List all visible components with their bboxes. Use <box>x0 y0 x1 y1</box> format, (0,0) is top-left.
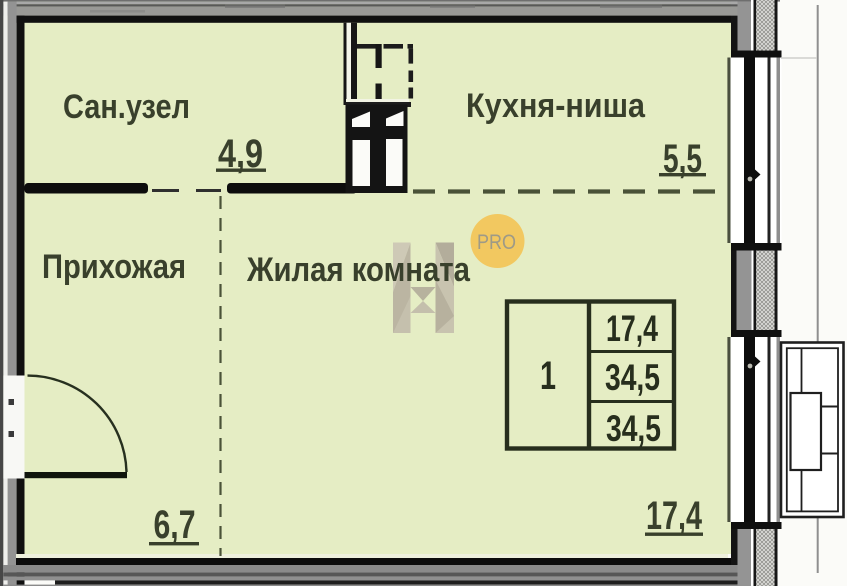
svg-text:17,4: 17,4 <box>606 308 658 349</box>
svg-text:PRO: PRO <box>477 231 516 254</box>
svg-text:34,5: 34,5 <box>606 408 661 449</box>
svg-text:6,7: 6,7 <box>154 503 196 547</box>
svg-text:Жилая комната: Жилая комната <box>246 251 471 289</box>
svg-text:17,4: 17,4 <box>646 494 703 538</box>
svg-text:Сан.узел: Сан.узел <box>63 88 190 126</box>
svg-text:1: 1 <box>540 354 556 398</box>
svg-text:Прихожая: Прихожая <box>42 248 186 286</box>
svg-text:34,5: 34,5 <box>605 357 660 398</box>
svg-text:Кухня-ниша: Кухня-ниша <box>466 87 646 125</box>
